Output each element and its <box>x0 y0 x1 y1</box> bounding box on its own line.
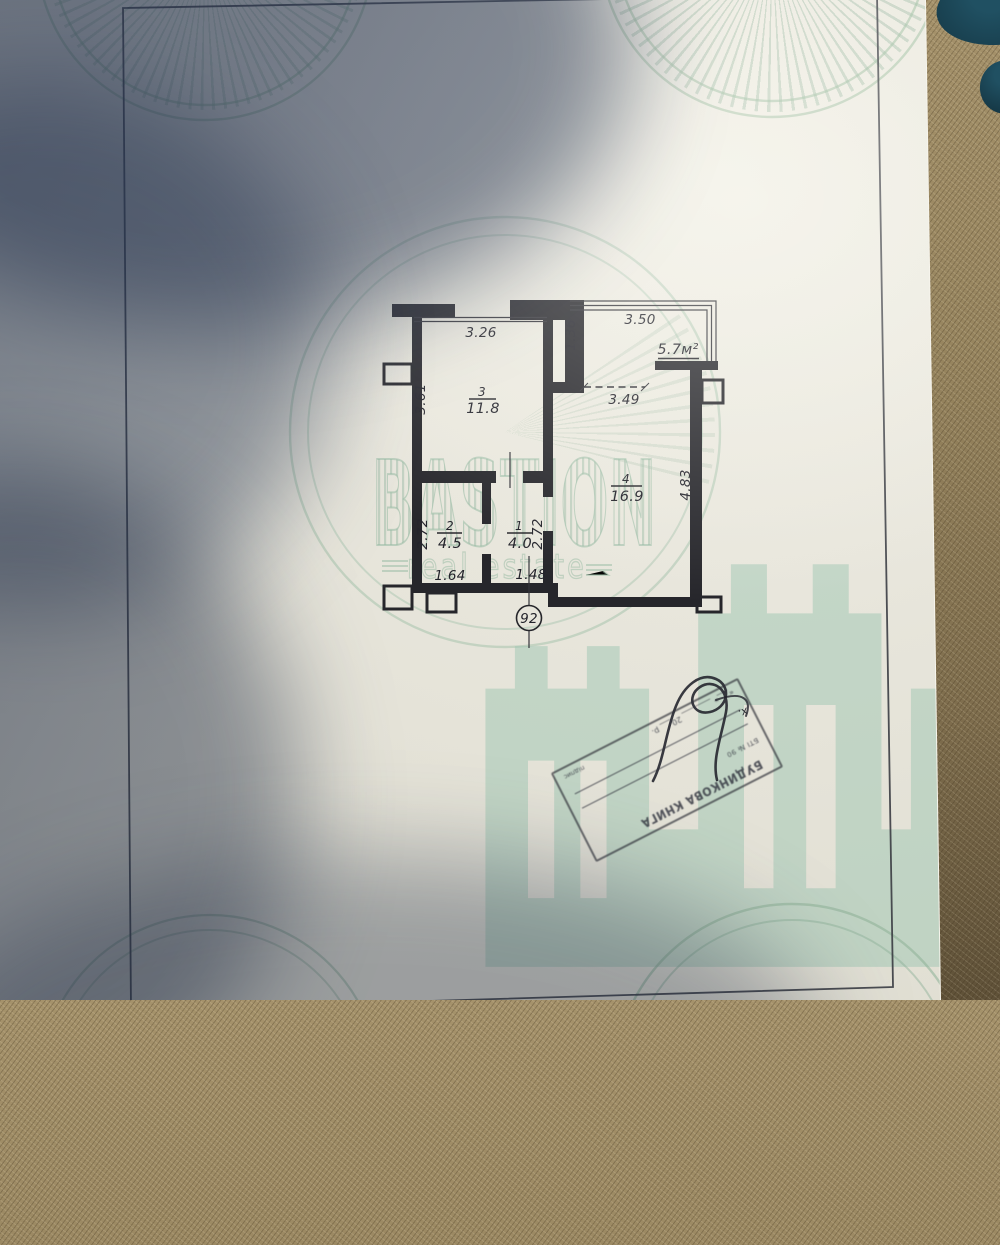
dim-opening-width: 3.49 <box>608 392 639 408</box>
room4-number: 4 <box>622 472 630 486</box>
photo-of-floor-plan-document: BASTION real estate <box>0 0 1000 1000</box>
room2-area: 4.5 <box>438 536 462 552</box>
teal-fabric-object-small <box>973 53 1000 120</box>
dim-room1-height: 2.72 <box>530 518 546 549</box>
apartment-number: 92 <box>520 611 538 627</box>
dim-bottom-mid: 1.48 <box>515 567 546 583</box>
dim-balcony-width: 3.50 <box>624 312 655 328</box>
floor-plan-drawing: 3.26 1.36 3.50 5.7м² 3.49 3.61 4.83 2.72… <box>0 0 1000 1000</box>
room3-number: 3 <box>478 385 486 399</box>
teal-fabric-object <box>931 0 1000 54</box>
dim-bottom-left: 1.64 <box>434 568 465 584</box>
room1-area: 4.0 <box>508 536 532 552</box>
dim-room4-height: 4.83 <box>678 469 694 500</box>
room4-area: 16.9 <box>610 489 644 505</box>
stamp-signature-label: підпис <box>562 764 586 781</box>
document-frame <box>123 0 893 1000</box>
dim-room3-height: 3.61 <box>413 383 429 414</box>
dim-room2-height: 2.72 <box>415 518 431 549</box>
room2-number: 2 <box>446 519 454 533</box>
dim-room3-width: 3.26 <box>465 325 496 341</box>
dim-balcony-side: 1.36 <box>563 319 579 350</box>
room3-area: 11.8 <box>466 401 500 417</box>
apartment-number-badge: 92 <box>517 606 542 631</box>
paper-sheet: BASTION real estate <box>0 0 1000 1000</box>
room1-number: 1 <box>515 519 523 533</box>
balcony-area-label: 5.7м² <box>657 342 698 358</box>
